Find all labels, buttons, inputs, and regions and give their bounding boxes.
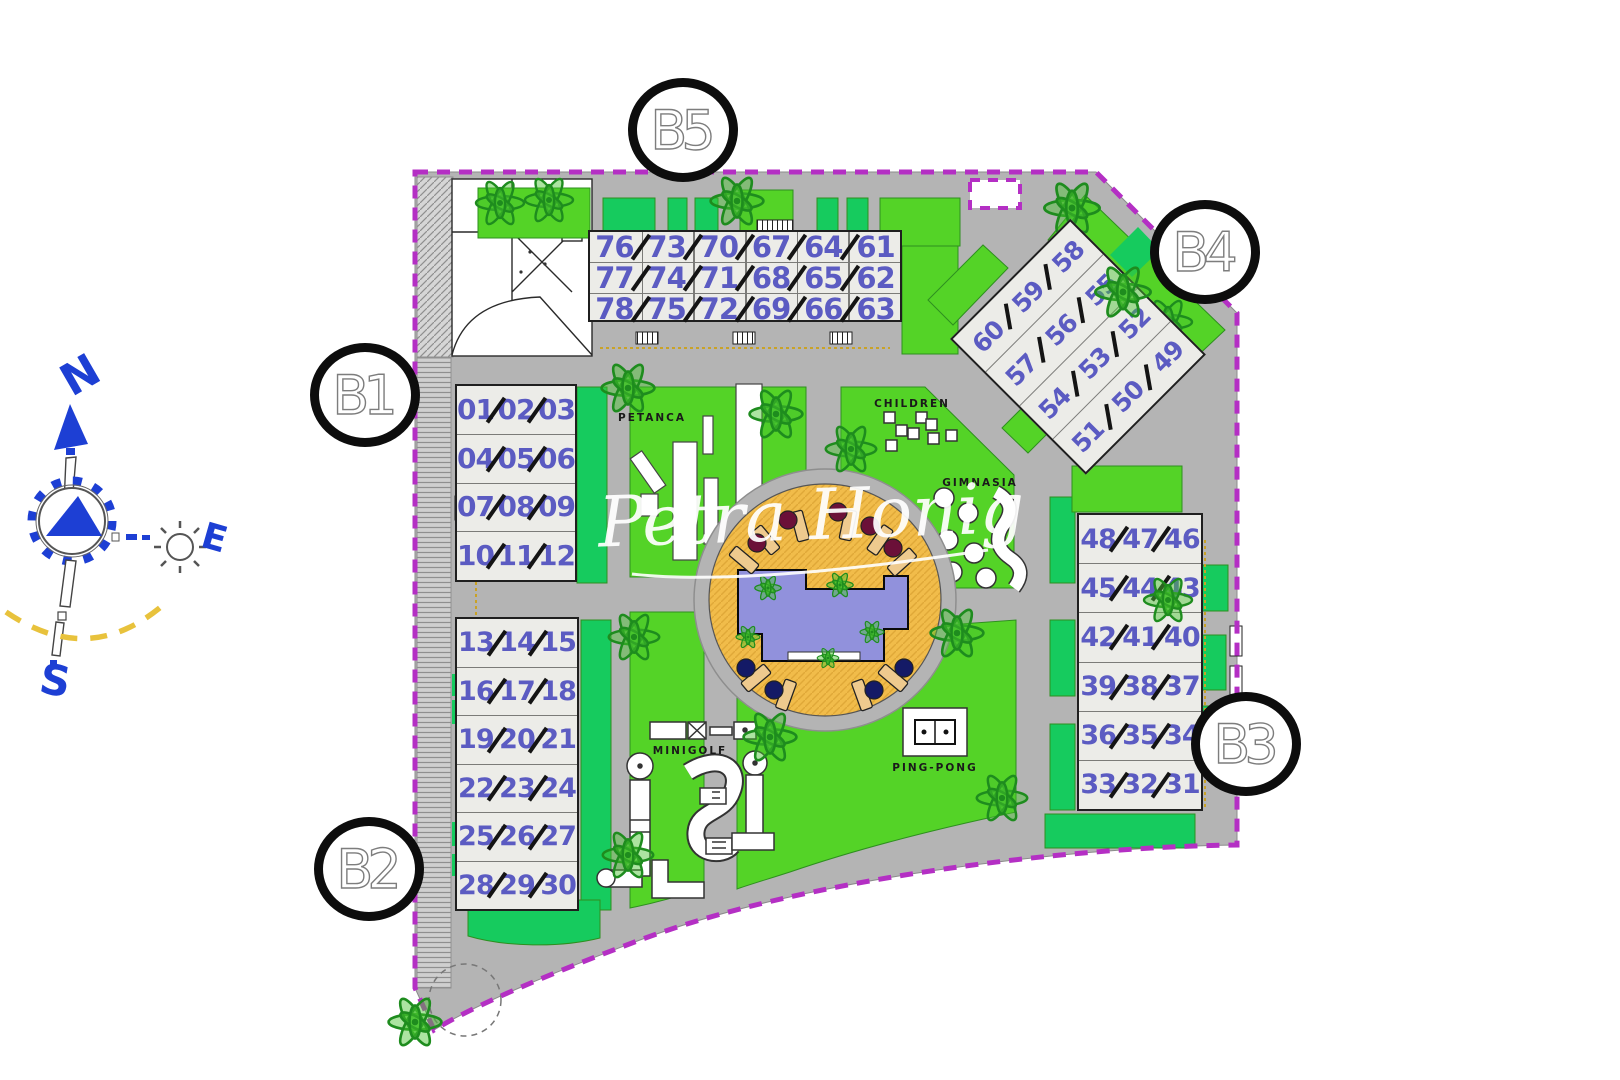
stair-line (1077, 297, 1085, 323)
unit-number: 53 (1074, 343, 1115, 384)
unit-number: 73 (647, 233, 685, 262)
unit-number: 56 (1041, 310, 1082, 351)
label-petanca: PETANCA (618, 412, 686, 424)
stair-line (1037, 337, 1045, 363)
unit-number: 76 (595, 233, 633, 262)
label-minigolf: MINIGOLF (653, 745, 727, 757)
building-b5-units: 767370676461777471686562787572696663 (588, 230, 902, 322)
stair-line (1111, 330, 1119, 356)
building-b1-units: 010203040506070809101112 (455, 384, 577, 582)
unit-row: 101112 (457, 531, 575, 580)
marker-b2: B2 (314, 817, 424, 921)
compass-icon (6, 404, 206, 667)
unit-number: 66 (804, 295, 842, 324)
unit-number: 78 (595, 295, 633, 324)
unit-number: 61 (856, 233, 894, 262)
unit-row: 777471686562 (590, 262, 900, 293)
unit-number: 60 (967, 316, 1008, 357)
stair-line (1144, 364, 1152, 390)
unit-number: 63 (856, 295, 894, 324)
building-b3-units: 484746454443424140393837363534333231 (1077, 513, 1203, 811)
unit-number: 40 (1164, 624, 1200, 651)
unit-row: 252627 (457, 812, 577, 861)
unit-number: 70 (700, 233, 738, 262)
unit-number: 62 (856, 264, 894, 293)
unit-number: 54 (1034, 383, 1075, 424)
unit-number: 72 (700, 295, 738, 324)
unit-number: 51 (1068, 416, 1109, 457)
unit-row: 131415 (457, 619, 577, 667)
entrance-gap (970, 180, 1020, 208)
building-b2-units: 131415161718192021222324252627282930 (455, 617, 579, 911)
unit-row: 161718 (457, 667, 577, 716)
unit-number: 43 (1164, 575, 1200, 602)
stair-line (1004, 304, 1012, 330)
unit-row: 282930 (457, 861, 577, 910)
unit-row: 363534 (1079, 711, 1201, 760)
unit-number: 59 (1007, 276, 1048, 317)
unit-number: 52 (1114, 303, 1155, 344)
stair-line (1044, 264, 1052, 290)
unit-number: 68 (752, 264, 790, 293)
marker-b1: B1 (310, 343, 420, 447)
unit-row: 424140 (1079, 612, 1201, 661)
watermark: Petra Honig (597, 466, 1040, 563)
unit-number: 50 (1108, 376, 1149, 417)
unit-number: 71 (700, 264, 738, 293)
unit-row: 040506 (457, 434, 575, 483)
marker-b4: B4 (1150, 200, 1260, 304)
ping-pong-table (903, 708, 967, 756)
label-children: CHILDREN (874, 398, 950, 410)
label-ping-pong: PING-PONG (892, 762, 977, 774)
unit-row: 393837 (1079, 662, 1201, 711)
unit-row: 767370676461 (590, 232, 900, 262)
unit-number: 58 (1047, 236, 1088, 277)
unit-row: 192021 (457, 715, 577, 764)
unit-row: 070809 (457, 483, 575, 532)
unit-number: 65 (804, 264, 842, 293)
unit-row: 787572696663 (590, 293, 900, 324)
unit-number: 75 (647, 295, 685, 324)
marker-b5: B5 (628, 78, 738, 182)
unit-number: 69 (752, 295, 790, 324)
unit-number: 74 (647, 264, 685, 293)
site-plan-canvas: 767370676461777471686562787572696663 605… (0, 0, 1620, 1080)
marker-b3: B3 (1191, 692, 1301, 796)
stair-line (1071, 370, 1079, 396)
unit-number: 55 (1081, 270, 1122, 311)
unit-number: 77 (595, 264, 633, 293)
stair-line (1104, 404, 1112, 430)
unit-number: 67 (752, 233, 790, 262)
unit-number: 57 (1001, 350, 1042, 391)
unit-row: 454443 (1079, 563, 1201, 612)
unit-row: 010203 (457, 386, 575, 434)
unit-row: 484746 (1079, 515, 1201, 563)
unit-row: 222324 (457, 764, 577, 813)
unit-number: 64 (804, 233, 842, 262)
unit-row: 333231 (1079, 760, 1201, 809)
unit-number: 49 (1148, 337, 1189, 378)
